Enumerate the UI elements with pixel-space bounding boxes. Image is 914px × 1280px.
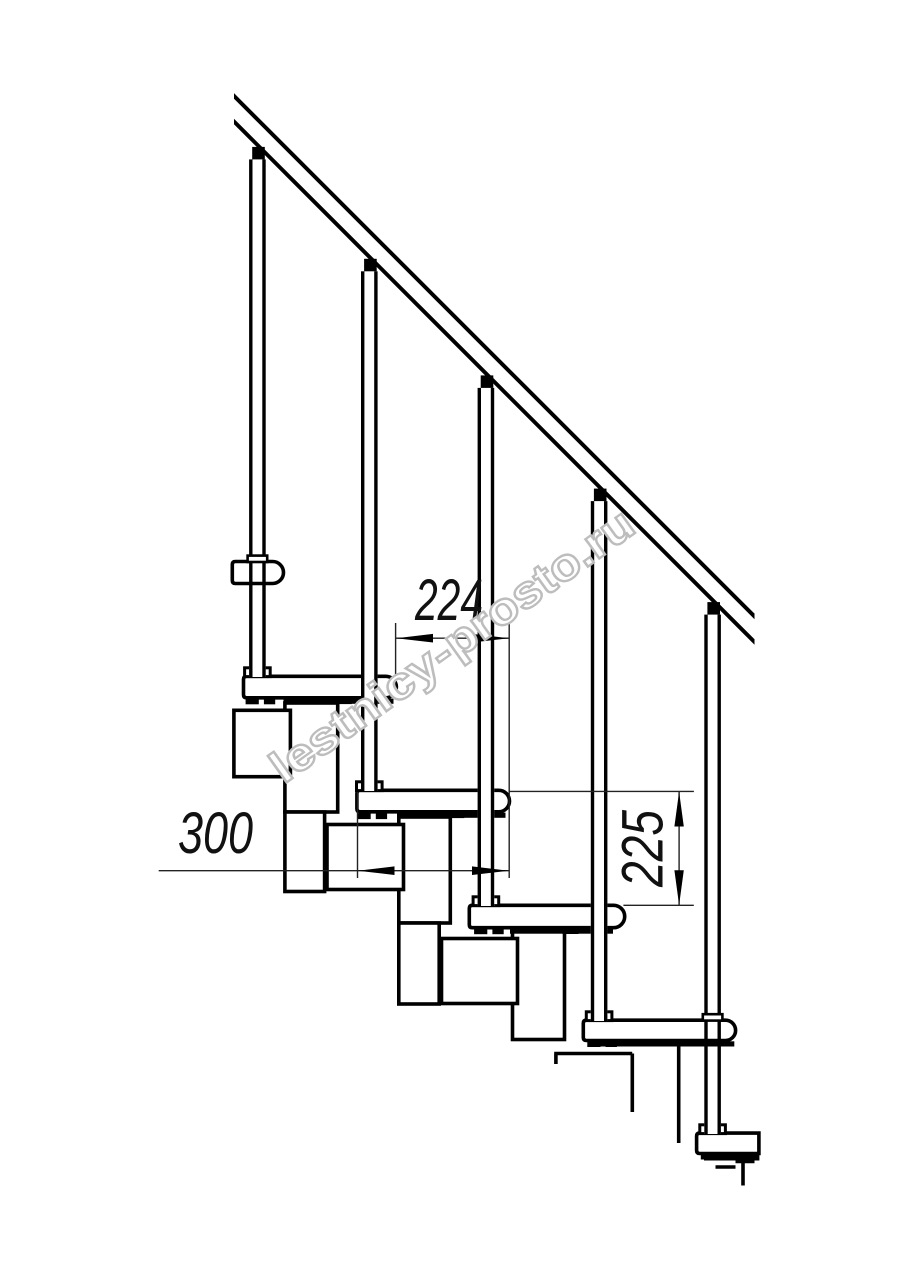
svg-text:300: 300	[178, 801, 253, 866]
svg-text:225: 225	[611, 809, 676, 887]
